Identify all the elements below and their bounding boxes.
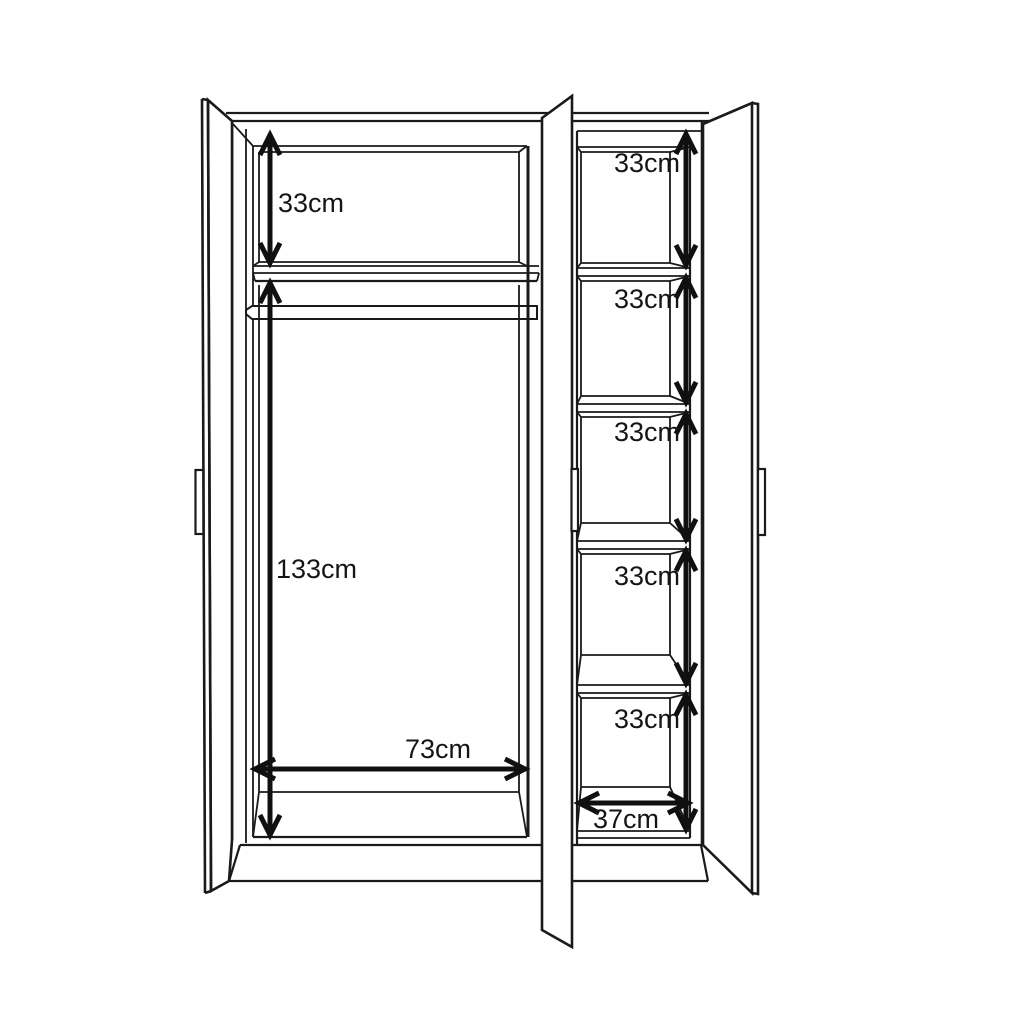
left-section-shelf <box>253 266 539 281</box>
dimension-label-left-width: 73cm <box>405 734 471 764</box>
wardrobe-carcass <box>226 113 712 881</box>
dimension-label-shelf-5: 33cm <box>614 704 680 734</box>
dimension-label-left-top-height: 33cm <box>278 188 344 218</box>
right-door <box>703 103 765 894</box>
hanging-rail <box>246 306 537 319</box>
dimension-arrow-left-width <box>255 759 525 779</box>
wardrobe-drawing-canvas: 33cm 133cm 73cm 33cm 33cm 33cm 33cm <box>0 0 1024 1024</box>
middle-door-handle <box>572 469 579 531</box>
left-door <box>196 99 233 893</box>
dimension-label-shelf-4: 33cm <box>614 561 680 591</box>
dimension-annotations: 33cm 133cm 73cm 33cm 33cm 33cm 33cm <box>255 134 696 835</box>
dimension-label-hanging-height: 133cm <box>276 554 357 584</box>
dimension-label-right-width: 37cm <box>593 804 659 834</box>
middle-door <box>542 96 578 947</box>
dimension-label-shelf-2: 33cm <box>614 284 680 314</box>
dimension-label-shelf-3: 33cm <box>614 417 680 447</box>
dimension-label-shelf-1: 33cm <box>614 148 680 178</box>
right-door-handle <box>758 469 765 535</box>
dimension-arrow-left-top-height <box>260 135 280 263</box>
wardrobe-dimension-diagram: 33cm 133cm 73cm 33cm 33cm 33cm 33cm <box>0 0 1024 1024</box>
